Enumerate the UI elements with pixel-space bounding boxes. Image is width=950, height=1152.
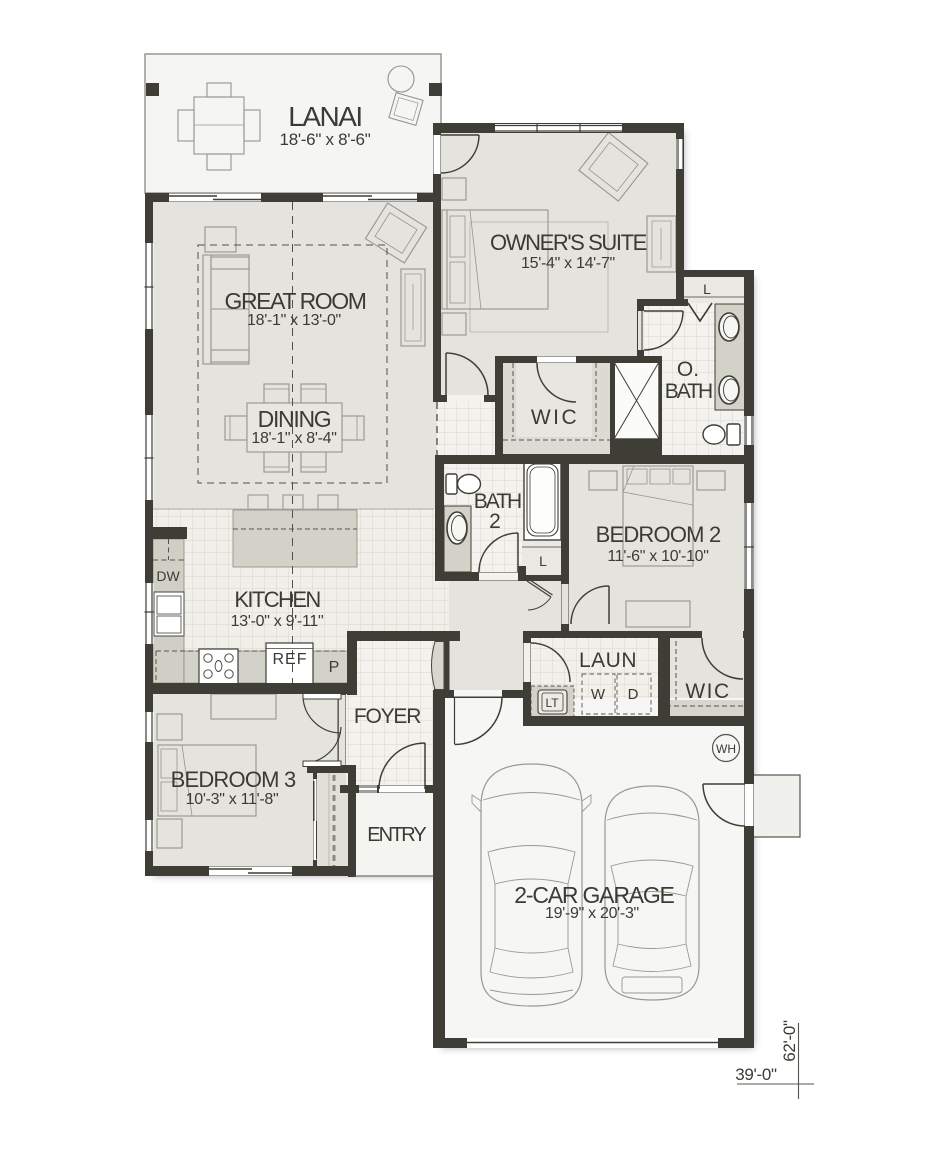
svg-text:18'-1" x 13'-0": 18'-1" x 13'-0" bbox=[247, 312, 341, 329]
svg-text:BEDROOM 2: BEDROOM 2 bbox=[596, 522, 721, 547]
svg-text:LT: LT bbox=[545, 696, 559, 710]
svg-text:WIC: WIC bbox=[685, 680, 730, 703]
svg-text:W: W bbox=[591, 686, 606, 703]
svg-text:BEDROOM 3: BEDROOM 3 bbox=[171, 767, 296, 792]
svg-text:GREAT ROOM: GREAT ROOM bbox=[224, 288, 365, 314]
svg-text:18'-6" x 8'-6": 18'-6" x 8'-6" bbox=[280, 130, 371, 149]
svg-text:WIC: WIC bbox=[531, 406, 579, 429]
svg-text:OWNER'S SUITE: OWNER'S SUITE bbox=[490, 230, 647, 255]
svg-text:LANAI: LANAI bbox=[288, 101, 361, 132]
svg-text:ENTRY: ENTRY bbox=[367, 824, 426, 846]
svg-text:DINING: DINING bbox=[258, 406, 331, 432]
svg-text:P: P bbox=[329, 659, 340, 676]
svg-text:18'-1" x 8'-4": 18'-1" x 8'-4" bbox=[251, 430, 336, 447]
svg-text:WH: WH bbox=[716, 742, 736, 756]
svg-text:13'-0" x 9'-11": 13'-0" x 9'-11" bbox=[231, 613, 324, 630]
svg-text:10'-3" x 11'-8": 10'-3" x 11'-8" bbox=[186, 791, 279, 808]
svg-text:LAUN: LAUN bbox=[579, 649, 637, 672]
svg-text:15'-4" x 14'-7": 15'-4" x 14'-7" bbox=[521, 255, 615, 272]
svg-text:REF: REF bbox=[273, 651, 308, 668]
svg-text:2: 2 bbox=[489, 510, 501, 533]
svg-text:KITCHEN: KITCHEN bbox=[234, 587, 320, 612]
svg-text:FOYER: FOYER bbox=[354, 705, 421, 728]
svg-text:19'-9" x 20'-3": 19'-9" x 20'-3" bbox=[545, 905, 639, 922]
svg-text:BATH: BATH bbox=[665, 380, 712, 403]
svg-text:D: D bbox=[628, 686, 639, 703]
svg-text:11'-6" x 10'-10": 11'-6" x 10'-10" bbox=[607, 548, 708, 565]
svg-text:39'-0": 39'-0" bbox=[735, 1065, 777, 1084]
svg-text:L: L bbox=[703, 281, 711, 297]
svg-text:O.: O. bbox=[677, 358, 699, 381]
svg-text:62'-0": 62'-0" bbox=[780, 1020, 799, 1062]
svg-text:DW: DW bbox=[156, 568, 180, 584]
svg-text:L: L bbox=[539, 553, 547, 569]
